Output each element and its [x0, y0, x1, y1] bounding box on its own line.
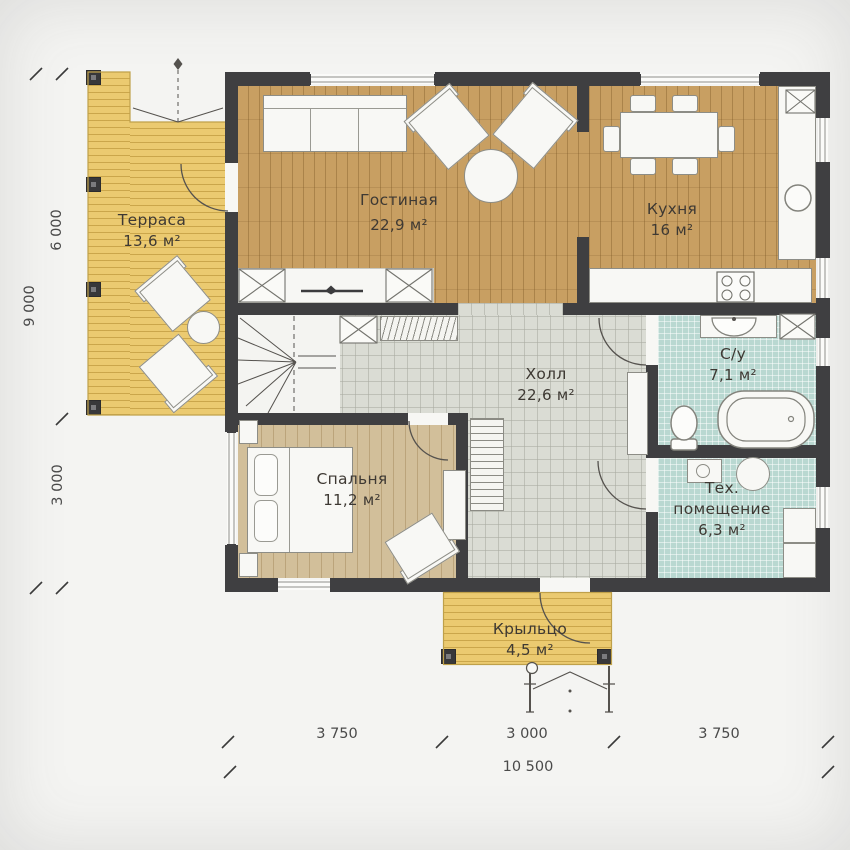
dim-bottom-3750-left: 3 750: [297, 726, 377, 742]
room-name: Спальня: [292, 469, 412, 490]
room-area: 22,6 м²: [486, 385, 606, 405]
wardrobe: [443, 470, 466, 540]
hall-closet: [627, 372, 648, 455]
dining-chair: [672, 95, 698, 112]
entry-door-opening: [540, 578, 590, 592]
room-area: 11,2 м²: [292, 490, 412, 510]
window: [310, 74, 435, 84]
stairs-area: [238, 315, 340, 413]
dining-chair: [630, 95, 656, 112]
window: [818, 118, 828, 162]
room-label-porch: Крыльцо 4,5 м²: [470, 619, 590, 660]
dim-left-9000: 9 000: [22, 266, 38, 346]
dining-chair: [718, 126, 735, 152]
room-name: Гостиная: [339, 190, 459, 211]
terrace-steps: [133, 58, 223, 122]
wall-kitchen-bath: [563, 303, 830, 315]
hearth-band: [238, 268, 434, 303]
room-label-tech: Тех. помещение 6,3 м²: [667, 478, 777, 540]
floor-plan: Терраса 13,6 м² Гостиная 22,9 м² Кухня 1…: [0, 0, 850, 850]
room-area: 13,6 м²: [92, 231, 212, 251]
room-area: 6,3 м²: [667, 520, 777, 540]
room-area: 7,1 м²: [673, 365, 793, 385]
dim-left-3000: 3 000: [50, 445, 66, 525]
hall-bench: [470, 418, 504, 511]
wall-left: [225, 545, 238, 592]
room-name: Крыльцо: [470, 619, 590, 640]
tech-door-opening: [646, 458, 658, 512]
tech-cabinet: [783, 508, 816, 543]
terrace-table: [187, 311, 220, 344]
room-area: 16 м²: [612, 220, 732, 240]
porch-post: [441, 649, 456, 664]
pillow: [254, 454, 278, 496]
sofa: [263, 95, 407, 152]
window: [640, 74, 760, 84]
dim-bottom-3750-right: 3 750: [679, 726, 759, 742]
dining-table: [620, 112, 718, 158]
room-name: С/у: [673, 344, 793, 365]
dining-chair: [672, 158, 698, 175]
terrace-door-opening: [225, 163, 238, 212]
wall-right: [816, 72, 830, 118]
wall-bath-tech: [646, 445, 816, 458]
dining-chair: [603, 126, 620, 152]
dining-chair: [630, 158, 656, 175]
bedroom-door-opening: [408, 413, 448, 425]
window: [818, 487, 828, 528]
wall-left: [225, 212, 238, 432]
nightstand: [239, 420, 258, 444]
room-area: 4,5 м²: [470, 640, 590, 660]
room-name: Холл: [486, 364, 606, 385]
window: [818, 258, 828, 298]
porch-steps: [524, 663, 615, 713]
wall-bottom: [590, 578, 830, 592]
room-label-bath: С/у 7,1 м²: [673, 344, 793, 385]
hall-living-opening: [458, 303, 563, 315]
room-name: Терраса: [92, 210, 212, 231]
dim-bottom-3000: 3 000: [487, 726, 567, 742]
window: [227, 432, 236, 545]
wall-top: [230, 72, 310, 86]
room-label-hall: Холл 22,6 м²: [486, 364, 606, 405]
porch-post: [597, 649, 612, 664]
terrace-post: [86, 177, 101, 192]
wall-living-hall: [238, 303, 458, 315]
dim-bottom-10500: 10 500: [488, 759, 568, 775]
wall-living-kitchen: [577, 86, 589, 132]
dim-left-6000: 6 000: [49, 190, 65, 270]
bath-door-opening: [646, 315, 658, 365]
kitchen-counter-bottom: [589, 268, 812, 303]
room-label-kitchen: Кухня 16 м²: [612, 199, 732, 240]
wall-top: [435, 72, 640, 86]
wall-right: [816, 162, 830, 258]
wall-bedroom-hall: [238, 413, 408, 425]
terrace-post: [86, 282, 101, 297]
room-label-bedroom: Спальня 11,2 м²: [292, 469, 412, 510]
coffee-table: [464, 149, 518, 203]
hall-radiator: [380, 316, 458, 341]
room-label-living: Гостиная 22,9 м²: [339, 190, 459, 235]
bath-sink-counter: [700, 315, 777, 338]
tech-cabinet: [783, 543, 816, 578]
wall-living-kitchen: [577, 237, 589, 303]
wall-bottom: [330, 578, 540, 592]
window: [278, 580, 330, 590]
room-area: 22,9 м²: [339, 215, 459, 235]
nightstand: [239, 553, 258, 577]
terrace-post: [86, 400, 101, 415]
wall-right: [816, 366, 830, 487]
terrace-post: [86, 70, 101, 85]
kitchen-counter-right: [778, 86, 816, 260]
room-name: Тех. помещение: [667, 478, 777, 520]
wall-left: [225, 72, 238, 163]
room-label-terrace: Терраса 13,6 м²: [92, 210, 212, 251]
room-name: Кухня: [612, 199, 732, 220]
pillow: [254, 500, 278, 542]
wall-tech-hall: [646, 512, 658, 578]
window: [818, 338, 828, 366]
